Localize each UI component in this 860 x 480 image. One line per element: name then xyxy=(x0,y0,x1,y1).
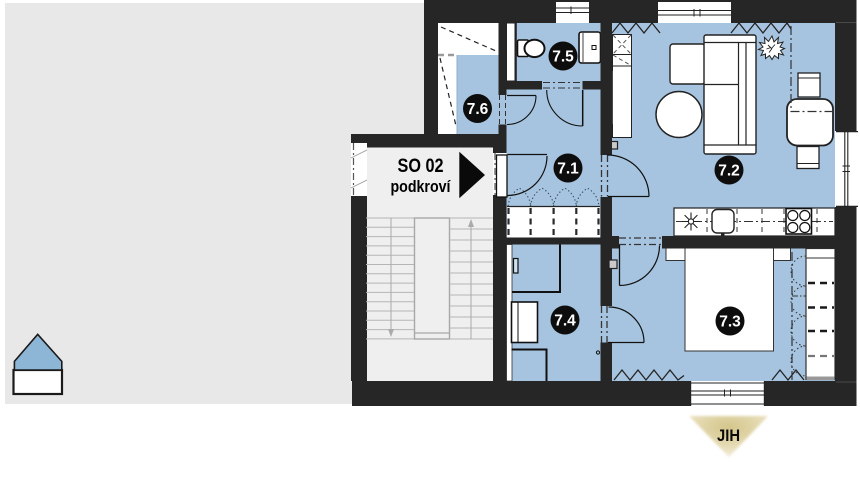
svg-text:7.6: 7.6 xyxy=(467,101,489,118)
svg-text:7.3: 7.3 xyxy=(719,314,741,331)
svg-text:JIH: JIH xyxy=(717,427,740,445)
svg-text:7.4: 7.4 xyxy=(554,313,576,330)
svg-text:podkroví: podkroví xyxy=(391,177,452,196)
svg-text:7.2: 7.2 xyxy=(718,163,740,180)
svg-text:SO 02: SO 02 xyxy=(398,156,444,177)
svg-text:7.5: 7.5 xyxy=(552,49,574,66)
svg-text:7.1: 7.1 xyxy=(557,161,579,178)
